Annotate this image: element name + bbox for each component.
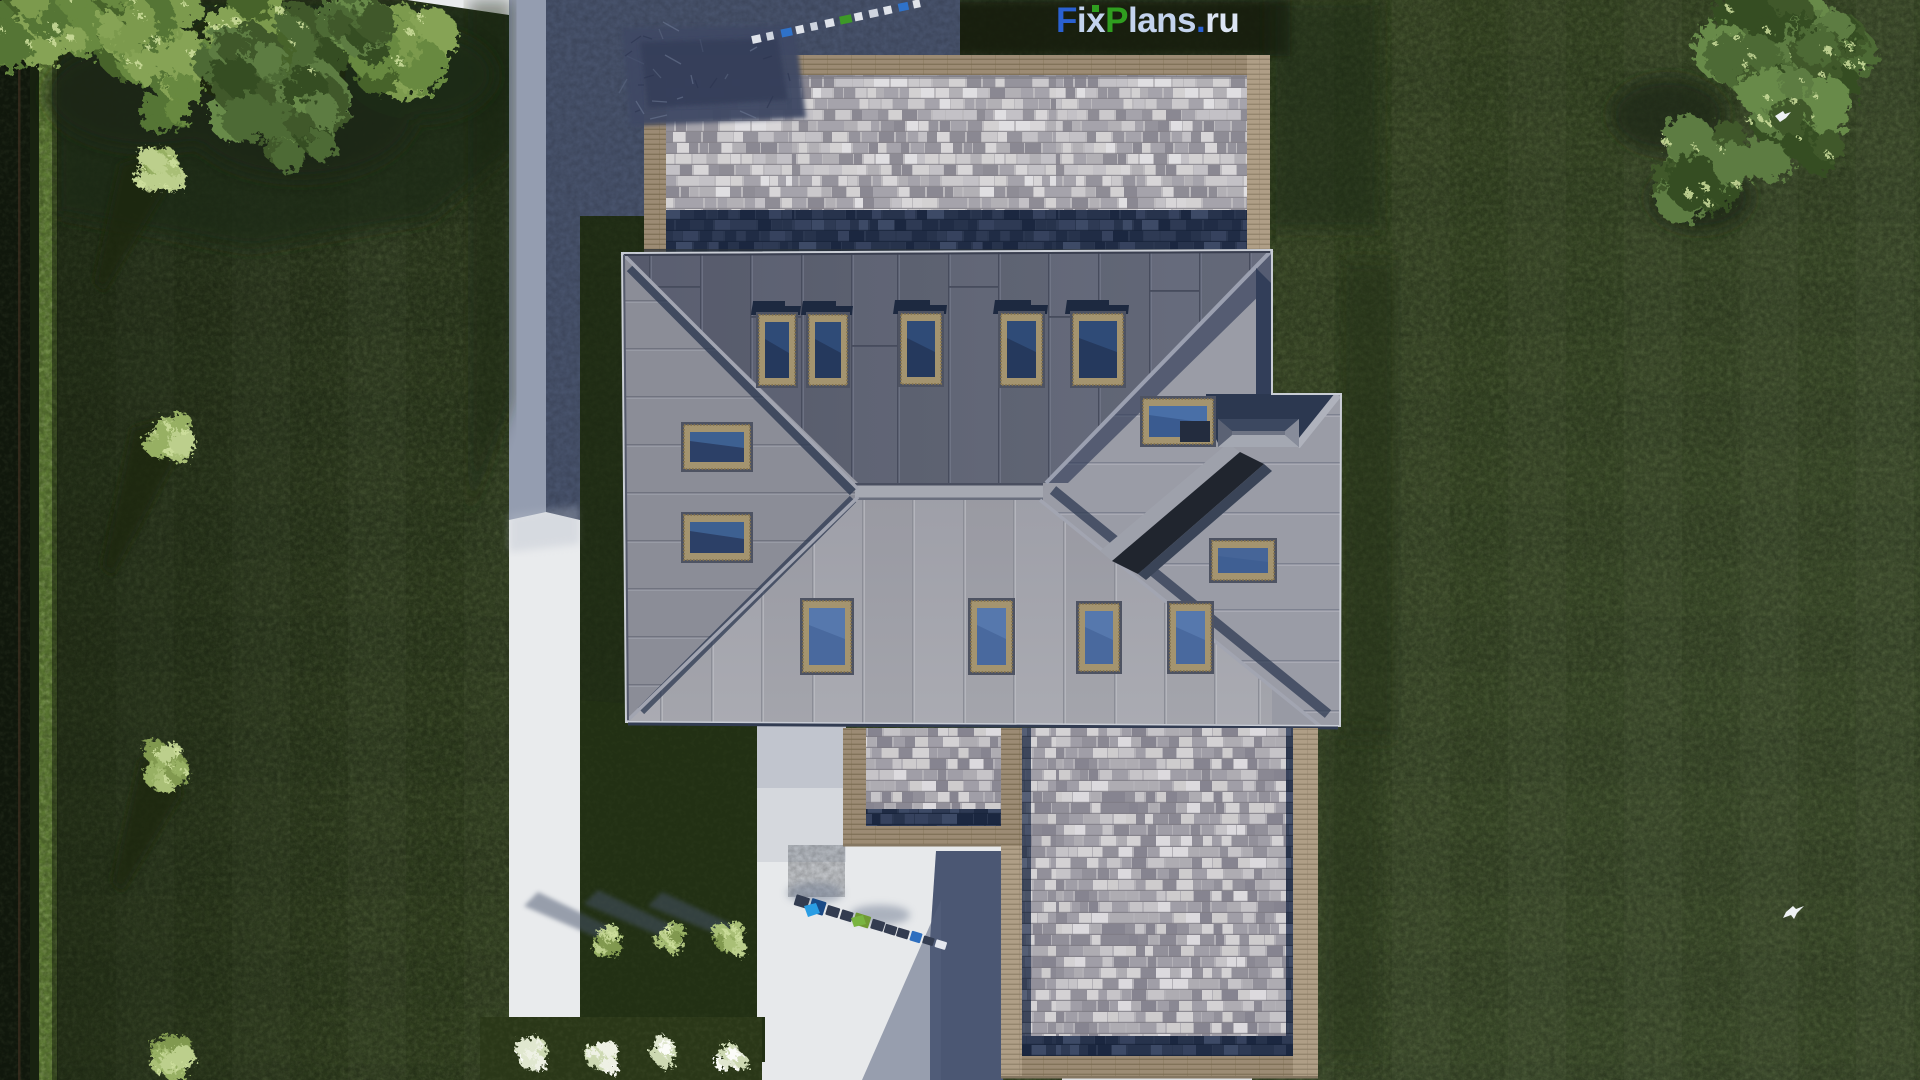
svg-text:FixPlans.ru: FixPlans.ru [1056,1,1239,40]
